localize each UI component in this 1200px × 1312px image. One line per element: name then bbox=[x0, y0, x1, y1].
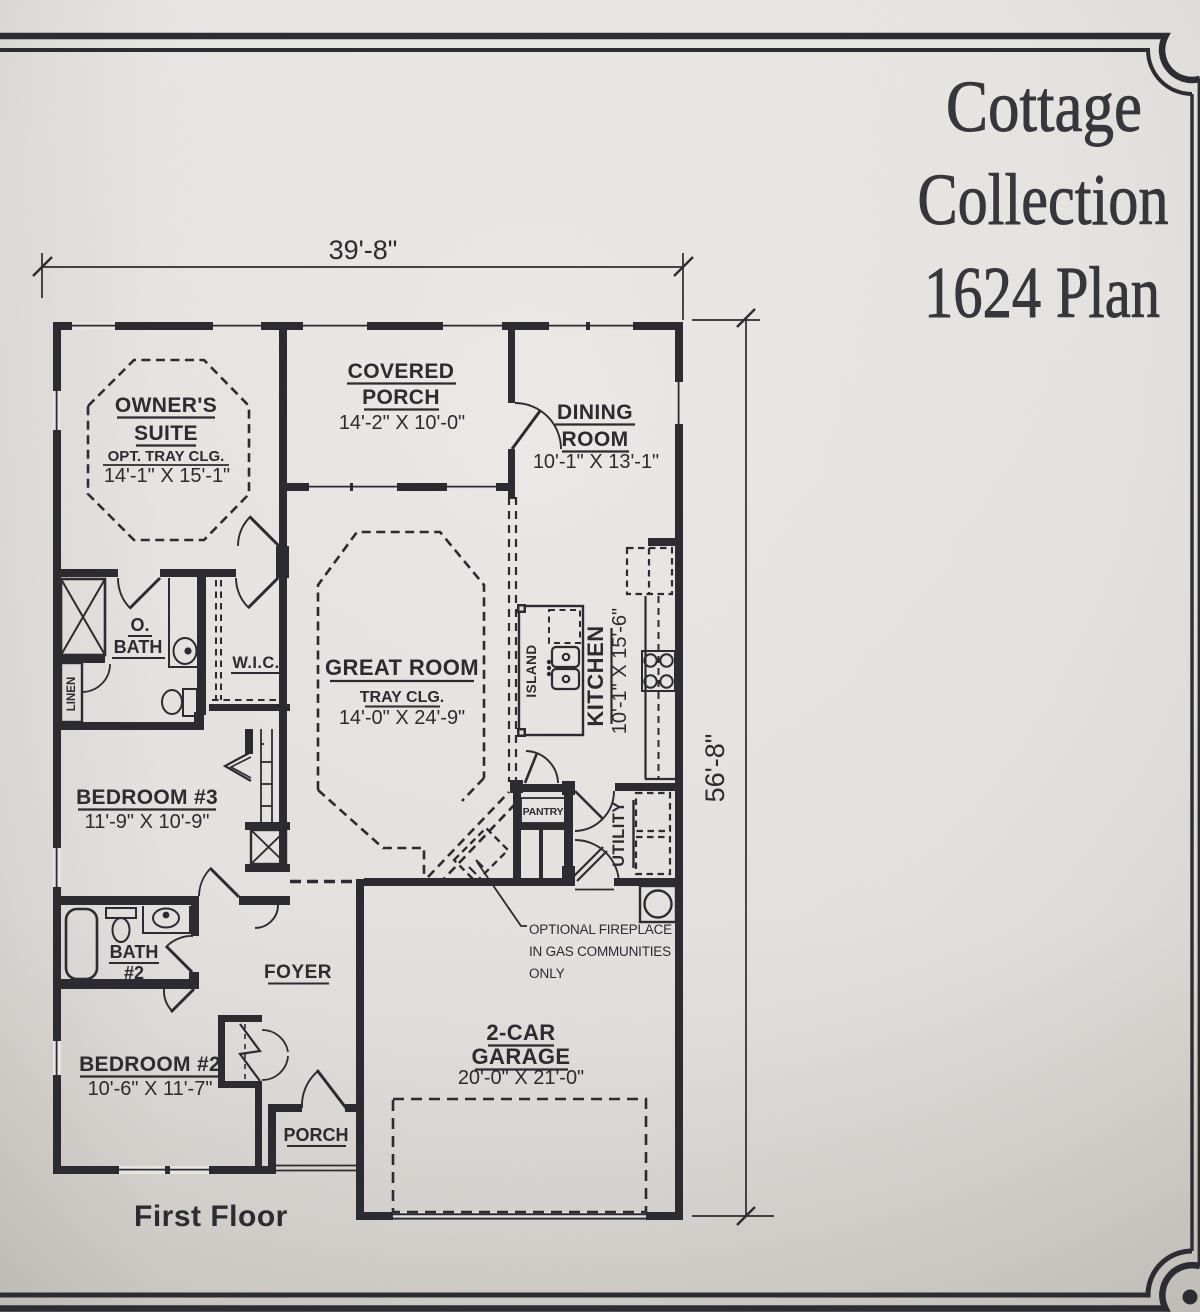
svg-text:ONLY: ONLY bbox=[529, 966, 565, 981]
svg-text:First Floor: First Floor bbox=[134, 1200, 288, 1233]
svg-text:PORCH: PORCH bbox=[283, 1125, 348, 1145]
svg-text:20'-0" X 21'-0": 20'-0" X 21'-0" bbox=[458, 1067, 584, 1089]
svg-text:2-CAR: 2-CAR bbox=[486, 1020, 555, 1045]
svg-text:BEDROOM #2: BEDROOM #2 bbox=[79, 1053, 221, 1076]
svg-text:LINEN: LINEN bbox=[66, 677, 78, 712]
svg-text:BEDROOM #3: BEDROOM #3 bbox=[76, 786, 218, 809]
svg-text:BATH: BATH bbox=[114, 637, 163, 657]
svg-text:1624 Plan: 1624 Plan bbox=[924, 252, 1160, 333]
svg-text:14'-2" X 10'-0": 14'-2" X 10'-0" bbox=[339, 412, 465, 434]
svg-text:56'-8": 56'-8" bbox=[700, 734, 730, 803]
svg-text:COVERED: COVERED bbox=[348, 360, 455, 383]
svg-text:ISLAND: ISLAND bbox=[524, 644, 539, 697]
svg-text:11'-9" X 10'-9": 11'-9" X 10'-9" bbox=[85, 811, 210, 833]
svg-text:GARAGE: GARAGE bbox=[472, 1044, 571, 1069]
svg-text:IN GAS COMMUNITIES: IN GAS COMMUNITIES bbox=[529, 944, 671, 959]
svg-text:GREAT ROOM: GREAT ROOM bbox=[325, 655, 479, 680]
svg-text:UTILITY: UTILITY bbox=[610, 801, 628, 867]
svg-text:10'-1" X 15'-6": 10'-1" X 15'-6" bbox=[609, 608, 631, 734]
svg-text:SUITE: SUITE bbox=[134, 422, 198, 445]
svg-text:Collection: Collection bbox=[918, 159, 1169, 240]
svg-text:10'-6" X 11'-7": 10'-6" X 11'-7" bbox=[88, 1078, 213, 1100]
svg-text:O.: O. bbox=[130, 615, 149, 635]
svg-text:39'-8": 39'-8" bbox=[329, 235, 398, 265]
svg-text:14'-0" X 24'-9": 14'-0" X 24'-9" bbox=[339, 707, 465, 729]
svg-text:10'-1" X 13'-1": 10'-1" X 13'-1" bbox=[533, 451, 659, 473]
svg-text:PORCH: PORCH bbox=[362, 386, 440, 409]
svg-text:KITCHEN: KITCHEN bbox=[583, 625, 608, 726]
svg-text:TRAY CLG.: TRAY CLG. bbox=[360, 689, 444, 706]
svg-text:W.I.C.: W.I.C. bbox=[232, 654, 279, 672]
svg-text:Cottage: Cottage bbox=[946, 66, 1142, 147]
svg-text:OPTIONAL FIREPLACE: OPTIONAL FIREPLACE bbox=[529, 922, 672, 937]
svg-text:ROOM: ROOM bbox=[562, 428, 629, 451]
svg-text:DINING: DINING bbox=[557, 401, 633, 424]
svg-text:FOYER: FOYER bbox=[264, 962, 332, 983]
svg-text:OPT. TRAY CLG.: OPT. TRAY CLG. bbox=[108, 448, 225, 465]
svg-text:PANTRY: PANTRY bbox=[523, 806, 564, 818]
svg-text:BATH: BATH bbox=[110, 942, 159, 962]
svg-text:14'-1" X 15'-1": 14'-1" X 15'-1" bbox=[104, 465, 230, 487]
svg-text:OWNER'S: OWNER'S bbox=[115, 394, 217, 417]
